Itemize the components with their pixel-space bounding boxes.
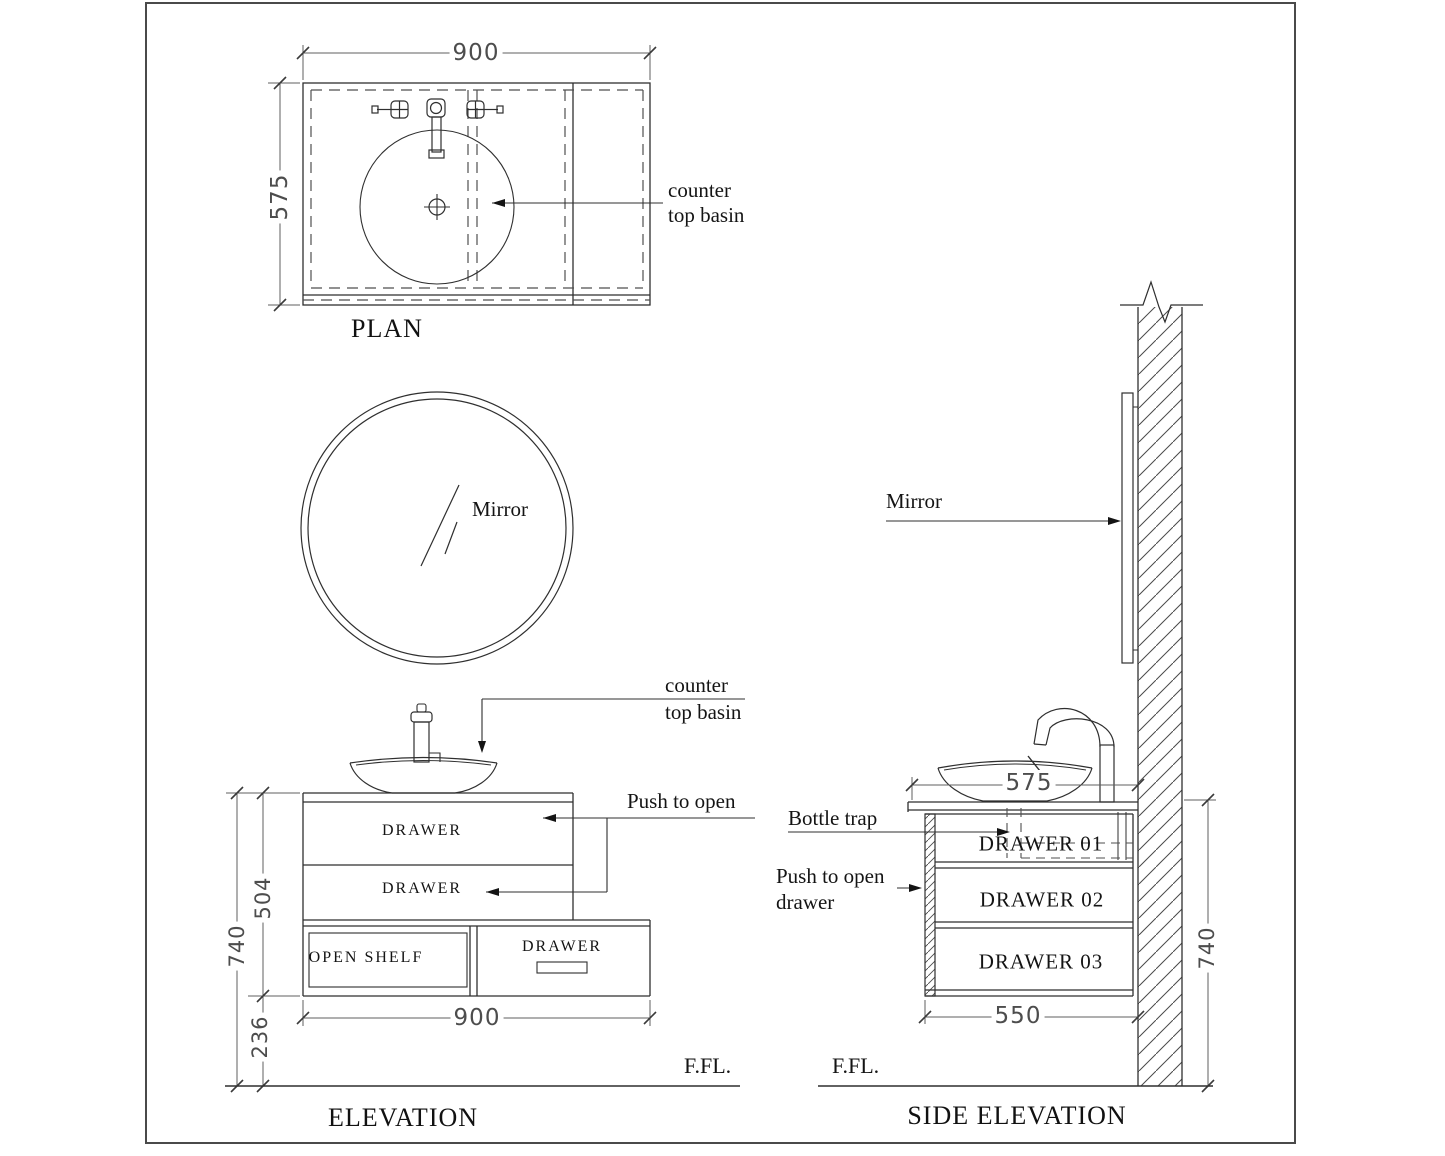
mirror-front-linework	[301, 392, 573, 664]
elevation-basin-label-line1: counter	[665, 673, 728, 698]
elevation-push-to-open-label: Push to open	[627, 789, 736, 814]
elevation-total-height-dimension: 740	[225, 921, 249, 970]
elevation-cabinet-height-dimension: 504	[251, 873, 275, 922]
elevation-clearance-dimension: 236	[248, 1012, 272, 1061]
side-push-label-line1: Push to open	[776, 864, 885, 889]
elevation-floor-level-label: F.FL.	[684, 1053, 731, 1079]
cad-drawing-sheet: 900 575 counter top basin PLAN Mirror co…	[0, 0, 1445, 1156]
elevation-drawer-top-label: DRAWER	[382, 822, 462, 840]
side-drawer-01-label: DRAWER 01	[979, 832, 1104, 857]
plan-view-linework	[268, 45, 663, 311]
elevation-open-shelf-label: OPEN SHELF	[309, 949, 424, 967]
plan-view-title: PLAN	[351, 314, 423, 344]
side-elevation-view-title: SIDE ELEVATION	[907, 1101, 1126, 1131]
plan-width-dimension: 900	[450, 40, 503, 66]
side-push-label-line2: drawer	[776, 890, 834, 915]
plan-basin-label-line2: top basin	[668, 203, 744, 228]
plan-depth-dimension: 575	[267, 171, 293, 224]
elevation-width-dimension: 900	[451, 1005, 504, 1031]
elevation-basin-label-line2: top basin	[665, 700, 741, 725]
elevation-view-title: ELEVATION	[328, 1103, 478, 1133]
elevation-drawer-bottom-label: DRAWER	[522, 938, 602, 956]
elevation-drawer-middle-label: DRAWER	[382, 880, 462, 898]
side-floor-level-label: F.FL.	[832, 1053, 879, 1079]
plan-basin-label-line1: counter	[668, 178, 731, 203]
elevation-linework	[225, 699, 755, 1092]
drawing-linework	[0, 0, 1445, 1156]
side-drawer-02-label: DRAWER 02	[980, 888, 1105, 913]
side-mirror-label: Mirror	[886, 489, 942, 514]
side-drawer-03-label: DRAWER 03	[979, 950, 1104, 975]
side-cabinet-depth-dimension: 550	[992, 1003, 1045, 1029]
mirror-front-label: Mirror	[472, 497, 528, 522]
side-bottle-trap-label: Bottle trap	[788, 806, 877, 831]
side-total-height-dimension: 740	[1195, 923, 1219, 972]
side-counter-depth-dimension: 575	[1003, 770, 1056, 796]
